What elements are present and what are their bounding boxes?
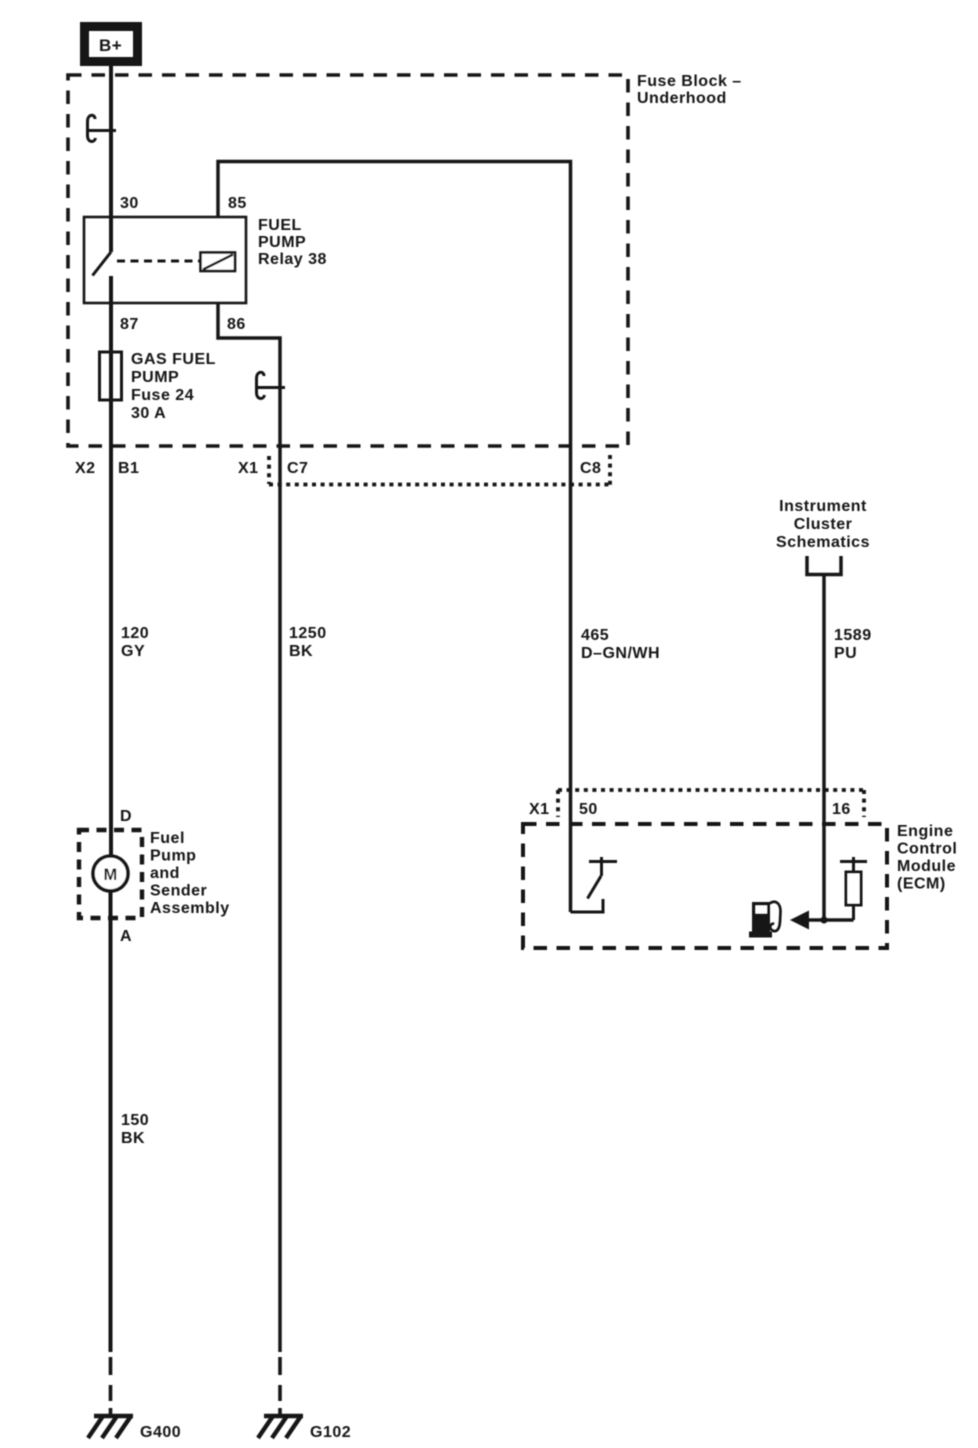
svg-text:Engine: Engine — [897, 823, 953, 840]
svg-text:X2: X2 — [75, 460, 96, 477]
svg-text:X1: X1 — [238, 460, 259, 477]
svg-text:Fuel: Fuel — [150, 830, 185, 847]
svg-text:Schematics: Schematics — [776, 534, 870, 551]
svg-text:30: 30 — [120, 195, 139, 212]
svg-text:Control: Control — [897, 841, 957, 858]
svg-text:Fuse Block –: Fuse Block – — [637, 73, 742, 90]
svg-text:C7: C7 — [287, 460, 308, 477]
svg-text:Pump: Pump — [150, 848, 196, 865]
svg-text:Underhood: Underhood — [637, 90, 727, 107]
svg-text:BK: BK — [121, 1130, 145, 1147]
svg-text:120: 120 — [121, 625, 149, 642]
svg-text:and: and — [150, 865, 180, 882]
svg-text:PUMP: PUMP — [258, 234, 306, 251]
svg-text:Module: Module — [897, 858, 956, 875]
svg-text:X1: X1 — [529, 801, 550, 818]
svg-text:30 A: 30 A — [131, 405, 166, 422]
svg-text:A: A — [120, 928, 132, 945]
svg-text:D–GN/WH: D–GN/WH — [581, 645, 660, 662]
svg-text:G400: G400 — [140, 1424, 181, 1441]
svg-text:PUMP: PUMP — [131, 369, 179, 386]
svg-text:85: 85 — [228, 195, 247, 212]
svg-text:16: 16 — [832, 801, 851, 818]
svg-text:Sender: Sender — [150, 883, 207, 900]
svg-text:PU: PU — [834, 645, 857, 662]
svg-text:B1: B1 — [118, 460, 139, 477]
svg-text:G102: G102 — [310, 1424, 351, 1441]
svg-text:1589: 1589 — [834, 627, 872, 644]
svg-text:Fuse 24: Fuse 24 — [131, 387, 194, 404]
svg-text:1250: 1250 — [289, 625, 327, 642]
svg-text:50: 50 — [579, 801, 598, 818]
svg-text:FUEL: FUEL — [258, 217, 302, 234]
svg-text:BK: BK — [289, 643, 313, 660]
svg-text:Cluster: Cluster — [794, 516, 853, 533]
svg-text:150: 150 — [121, 1112, 149, 1129]
svg-text:86: 86 — [227, 316, 246, 333]
svg-text:(ECM): (ECM) — [897, 876, 946, 893]
svg-text:B+: B+ — [99, 36, 122, 55]
svg-text:Instrument: Instrument — [779, 498, 867, 515]
svg-text:M: M — [104, 866, 118, 884]
svg-text:Assembly: Assembly — [150, 900, 230, 917]
svg-text:465: 465 — [581, 627, 609, 644]
svg-text:GAS FUEL: GAS FUEL — [131, 351, 216, 368]
svg-text:Relay 38: Relay 38 — [258, 251, 327, 268]
svg-text:GY: GY — [121, 643, 145, 660]
svg-text:C8: C8 — [580, 460, 601, 477]
svg-text:87: 87 — [120, 316, 139, 333]
svg-text:D: D — [120, 808, 132, 825]
